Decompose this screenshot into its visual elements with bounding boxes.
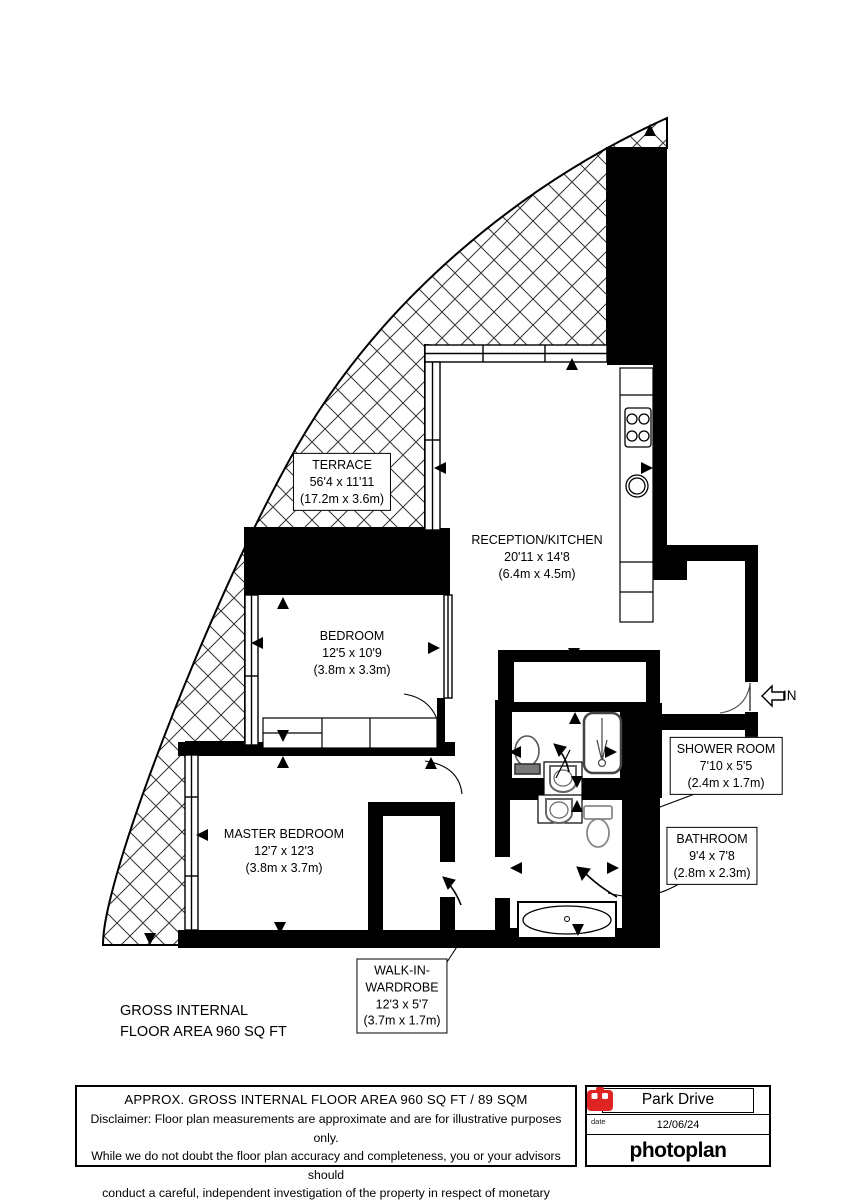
room-name: BATHROOM: [673, 831, 750, 848]
toilet-icon: [584, 806, 612, 847]
room-dims-imperial: 12'7 x 12'3: [224, 843, 344, 860]
wardrobe-units: [263, 718, 437, 748]
room-dims-metric: (2.8m x 2.3m): [673, 864, 750, 881]
bathtub-icon: [518, 902, 616, 938]
gross-area-note: GROSS INTERNAL FLOOR AREA 960 SQ FT: [120, 1001, 287, 1043]
bedroom-label: BEDROOM 12'5 x 10'9 (3.8m x 3.3m): [313, 628, 390, 678]
footer-area-title: APPROX. GROSS INTERNAL FLOOR AREA 960 SQ…: [77, 1087, 575, 1107]
kitchen-counter: [620, 368, 653, 622]
photoplan-logo-icon: [587, 1087, 613, 1111]
room-name: MASTER BEDROOM: [224, 826, 344, 843]
room-dims-imperial: 9'4 x 7'8: [673, 848, 750, 865]
date-value: 12/06/24: [657, 1119, 700, 1131]
room-dims-metric: (3.8m x 3.7m): [224, 859, 344, 876]
shower-icon: [584, 713, 621, 773]
shower-room-label: SHOWER ROOM 7'10 x 5'5 (2.4m x 1.7m): [670, 737, 783, 795]
disclaimer-line: While we do not doubt the floor plan acc…: [77, 1147, 575, 1184]
room-dims-imperial: 20'11 x 14'8: [471, 549, 602, 566]
room-dims-metric: (6.4m x 4.5m): [471, 565, 602, 582]
date-row: date 12/06/24: [587, 1114, 769, 1135]
room-name: BEDROOM: [313, 628, 390, 645]
property-name-row: Park Drive: [587, 1087, 769, 1114]
room-dims-metric: (2.4m x 1.7m): [677, 774, 776, 791]
room-dims-imperial: 56'4 x 11'11: [300, 474, 384, 491]
room-name: SHOWER ROOM: [677, 741, 776, 758]
room-dims-imperial: 7'10 x 5'5: [677, 758, 776, 775]
floorplan-page: TERRACE 56'4 x 11'11 (17.2m x 3.6m) RECE…: [0, 0, 849, 1200]
master-bedroom-label: MASTER BEDROOM 12'7 x 12'3 (3.8m x 3.7m): [224, 826, 344, 876]
reception-kitchen-label: RECEPTION/KITCHEN 20'11 x 14'8 (6.4m x 4…: [471, 532, 602, 582]
room-name: RECEPTION/KITCHEN: [471, 532, 602, 549]
footer-brand-box: Park Drive date 12/06/24 photoplan: [585, 1085, 771, 1167]
room-dims-imperial: 12'3 x 5'7: [363, 996, 440, 1013]
room-name: WARDROBE: [363, 979, 440, 996]
date-label: date: [591, 1117, 606, 1126]
room-name: WALK-IN-: [363, 963, 440, 980]
entrance-arrow-icon: [762, 686, 784, 706]
disclaimer-line: conduct a careful, independent investiga…: [77, 1184, 575, 1200]
gross-area-line2: FLOOR AREA 960 SQ FT: [120, 1022, 287, 1043]
room-name: TERRACE: [300, 457, 384, 474]
photoplan-logo-text: photoplan: [630, 1139, 727, 1163]
bathroom-label: BATHROOM 9'4 x 7'8 (2.8m x 2.3m): [666, 827, 757, 885]
walk-in-wardrobe-label: WALK-IN- WARDROBE 12'3 x 5'7 (3.7m x 1.7…: [356, 959, 447, 1034]
entrance-in-label: IN: [783, 688, 797, 703]
utility-cupboard: [514, 662, 646, 702]
basin-icon: [546, 799, 572, 823]
terrace-label: TERRACE 56'4 x 11'11 (17.2m x 3.6m): [293, 453, 391, 511]
property-name: Park Drive: [602, 1088, 754, 1113]
basin-icon: [550, 766, 576, 792]
room-dims-imperial: 12'5 x 10'9: [313, 645, 390, 662]
gross-area-line1: GROSS INTERNAL: [120, 1001, 287, 1022]
footer-disclaimer-box: APPROX. GROSS INTERNAL FLOOR AREA 960 SQ…: [75, 1085, 577, 1167]
room-dims-metric: (17.2m x 3.6m): [300, 490, 384, 507]
photoplan-logo: photoplan: [587, 1135, 769, 1166]
room-dims-metric: (3.7m x 1.7m): [363, 1013, 440, 1030]
disclaimer-line: Disclaimer: Floor plan measurements are …: [77, 1110, 575, 1147]
room-dims-metric: (3.8m x 3.3m): [313, 661, 390, 678]
footer-disclaimer: Disclaimer: Floor plan measurements are …: [77, 1107, 575, 1200]
